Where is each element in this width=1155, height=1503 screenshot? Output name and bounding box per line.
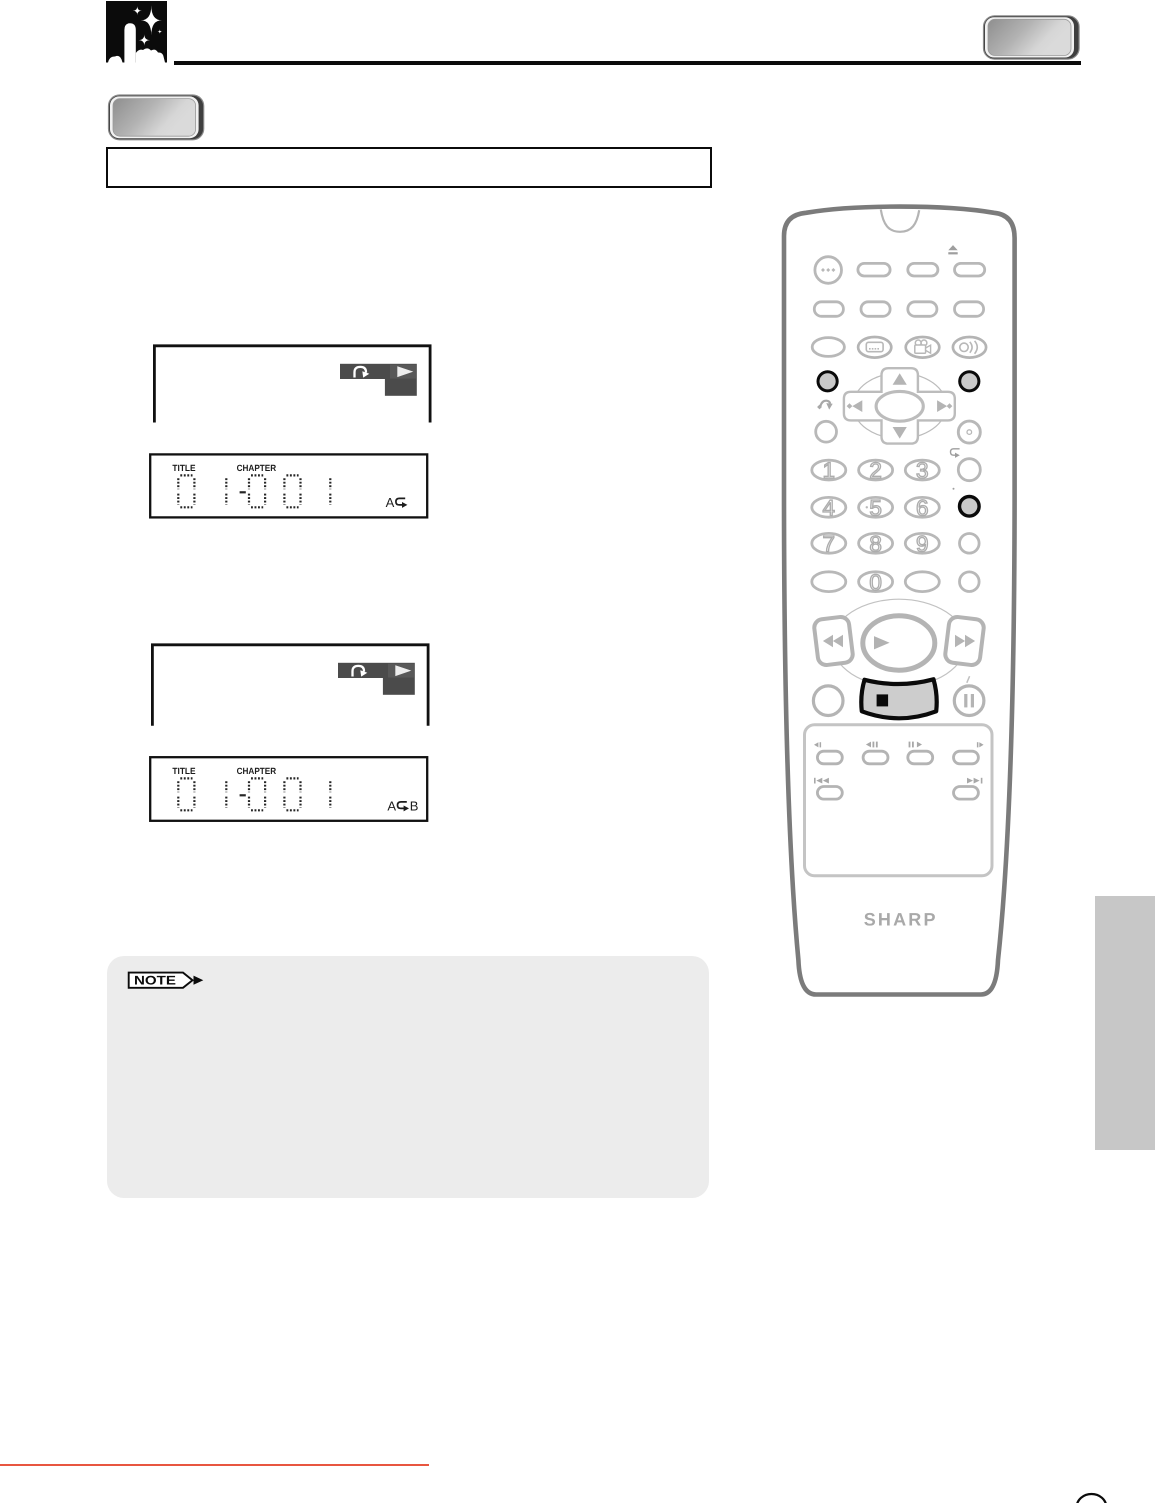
svg-text:0: 0 (869, 570, 882, 595)
svg-text:7: 7 (823, 531, 836, 556)
svg-text:A: A (387, 799, 396, 814)
svg-text:6: 6 (916, 495, 929, 520)
svg-text:SHARP: SHARP (864, 910, 938, 930)
svg-text:5: 5 (869, 495, 882, 520)
svg-text:CHAPTER: CHAPTER (237, 463, 277, 473)
svg-text:4: 4 (823, 495, 836, 520)
svg-text:9: 9 (916, 531, 929, 556)
svg-text:1: 1 (823, 458, 836, 483)
svg-text:2: 2 (869, 458, 882, 483)
svg-text:8: 8 (869, 531, 882, 556)
svg-text:B: B (410, 799, 419, 814)
svg-text:TITLE: TITLE (172, 463, 195, 473)
svg-text:CHAPTER: CHAPTER (237, 766, 277, 776)
svg-text:A: A (386, 495, 395, 510)
svg-text:3: 3 (916, 458, 929, 483)
svg-text:TITLE: TITLE (172, 766, 195, 776)
svg-text:NOTE: NOTE (134, 973, 176, 987)
